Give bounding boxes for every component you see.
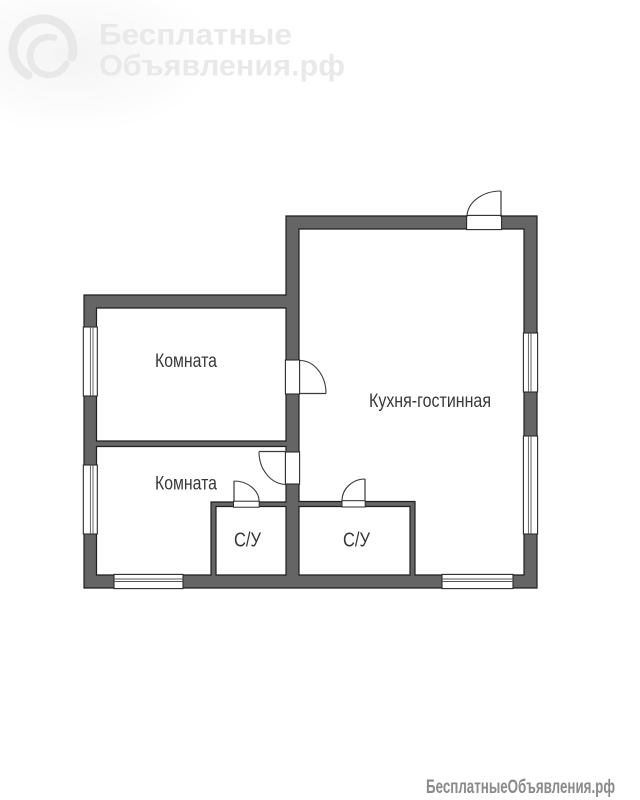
svg-text:Бесплатные: Бесплатные xyxy=(99,19,292,52)
svg-text:Комната: Комната xyxy=(155,474,217,495)
svg-text:С/У: С/У xyxy=(343,530,370,552)
svg-text:Кухня-гостинная: Кухня-гостинная xyxy=(369,391,491,412)
svg-text:С/У: С/У xyxy=(234,530,261,552)
svg-text:Объявления.рф: Объявления.рф xyxy=(99,50,345,83)
svg-text:БесплатныеОбъявления.рф: БесплатныеОбъявления.рф xyxy=(426,777,615,798)
svg-text:Комната: Комната xyxy=(155,351,217,372)
